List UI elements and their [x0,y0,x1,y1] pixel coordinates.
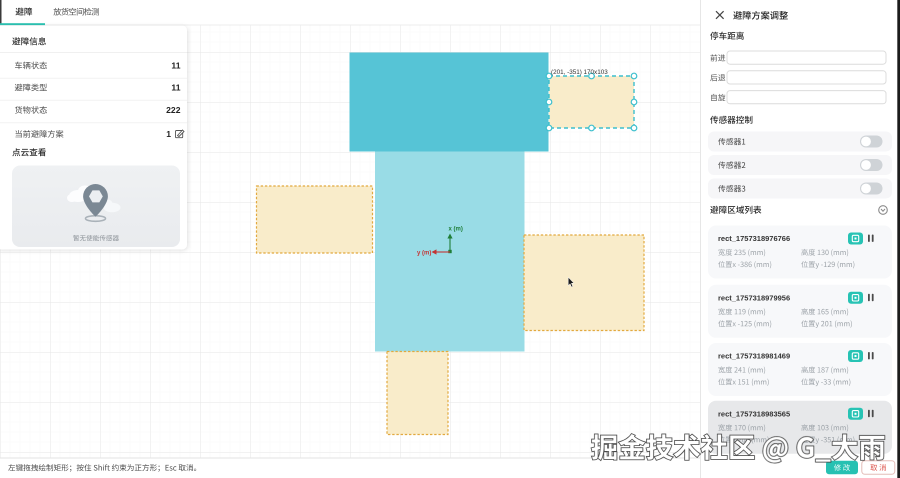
svg-text:rect_1757318983565: rect_1757318983565 [718,409,790,418]
svg-text:x (m): x (m) [449,227,463,233]
svg-text:(201, -351) 170x103: (201, -351) 170x103 [551,69,608,76]
svg-text:y (m): y (m) [417,251,431,257]
svg-text:1: 1 [166,129,171,139]
svg-text:222: 222 [166,105,181,115]
svg-text:11: 11 [171,83,180,93]
svg-text:11: 11 [171,61,180,71]
svg-text:rect_1757318976766: rect_1757318976766 [718,234,790,243]
svg-text:rect_1757318981469: rect_1757318981469 [718,352,790,361]
svg-text:rect_1757318979956: rect_1757318979956 [718,293,790,302]
